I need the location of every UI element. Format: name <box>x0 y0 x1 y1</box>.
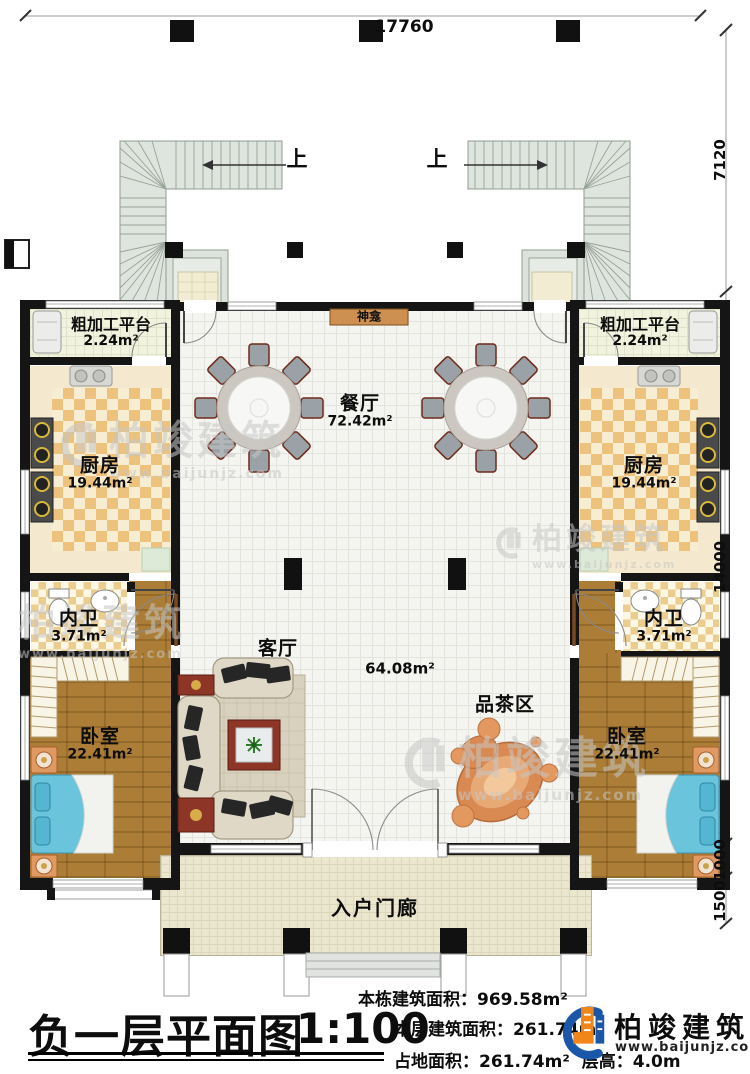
company-logo-icon <box>556 1002 610 1064</box>
tea-area-label: 品茶区 <box>475 694 535 715</box>
bedroom-left-floor <box>30 653 180 878</box>
hall-floor <box>180 309 570 843</box>
bedroom-right-floor <box>570 653 720 878</box>
stat-total-area: 本栋建筑面积：969.58m² <box>358 985 568 1010</box>
sheet-title: 负一层平面图 <box>28 1000 304 1065</box>
staircase-left <box>120 141 286 308</box>
platform-left-label: 粗加工平台2.24m² <box>71 316 151 350</box>
living-room-label: 客厅 <box>258 638 298 659</box>
bath-right-label: 内卫3.71m² <box>636 609 691 646</box>
bedroom-left-label: 卧室22.41m² <box>67 727 132 764</box>
dimension-right-14000: 14000 <box>711 541 729 593</box>
vestibule-right-floor <box>579 581 621 656</box>
title-underline <box>28 1052 384 1055</box>
porch-label: 入户门廊 <box>331 897 419 919</box>
floor-plan-canvas: 柏竣建筑 www.baijunjz.com 柏竣建筑 www.baijunjz.… <box>0 0 750 1074</box>
title-underline-2 <box>28 1059 384 1061</box>
entry-steps <box>306 953 440 977</box>
staircase-right <box>464 141 630 308</box>
hall-area-label: 64.08m² <box>365 661 435 678</box>
kitchen-left-label: 厨房19.44m² <box>67 456 132 493</box>
platform-right-label: 粗加工平台2.24m² <box>600 316 680 350</box>
dimension-right-7120: 7120 <box>711 139 729 181</box>
kitchen-right-label: 厨房19.44m² <box>611 456 676 493</box>
bedroom-right-label: 卧室22.41m² <box>594 727 659 764</box>
dimension-top: 17760 <box>374 17 433 37</box>
dimension-right-1500: 1500 <box>711 880 729 922</box>
bath-left-label: 内卫3.71m² <box>51 609 106 646</box>
dining-room-label: 餐厅72.42m² <box>327 394 392 431</box>
shrine-label: 神龛 <box>357 310 381 323</box>
company-url: www.baijunjz.com <box>615 1040 750 1055</box>
vestibule-left-floor <box>129 581 171 656</box>
dimension-right-1000: 1000 <box>711 839 729 881</box>
stair-up-label-right: 上 <box>427 148 448 172</box>
flue-box <box>5 240 29 268</box>
stair-up-label-left: 上 <box>287 148 308 172</box>
company-logo <box>556 1002 610 1068</box>
